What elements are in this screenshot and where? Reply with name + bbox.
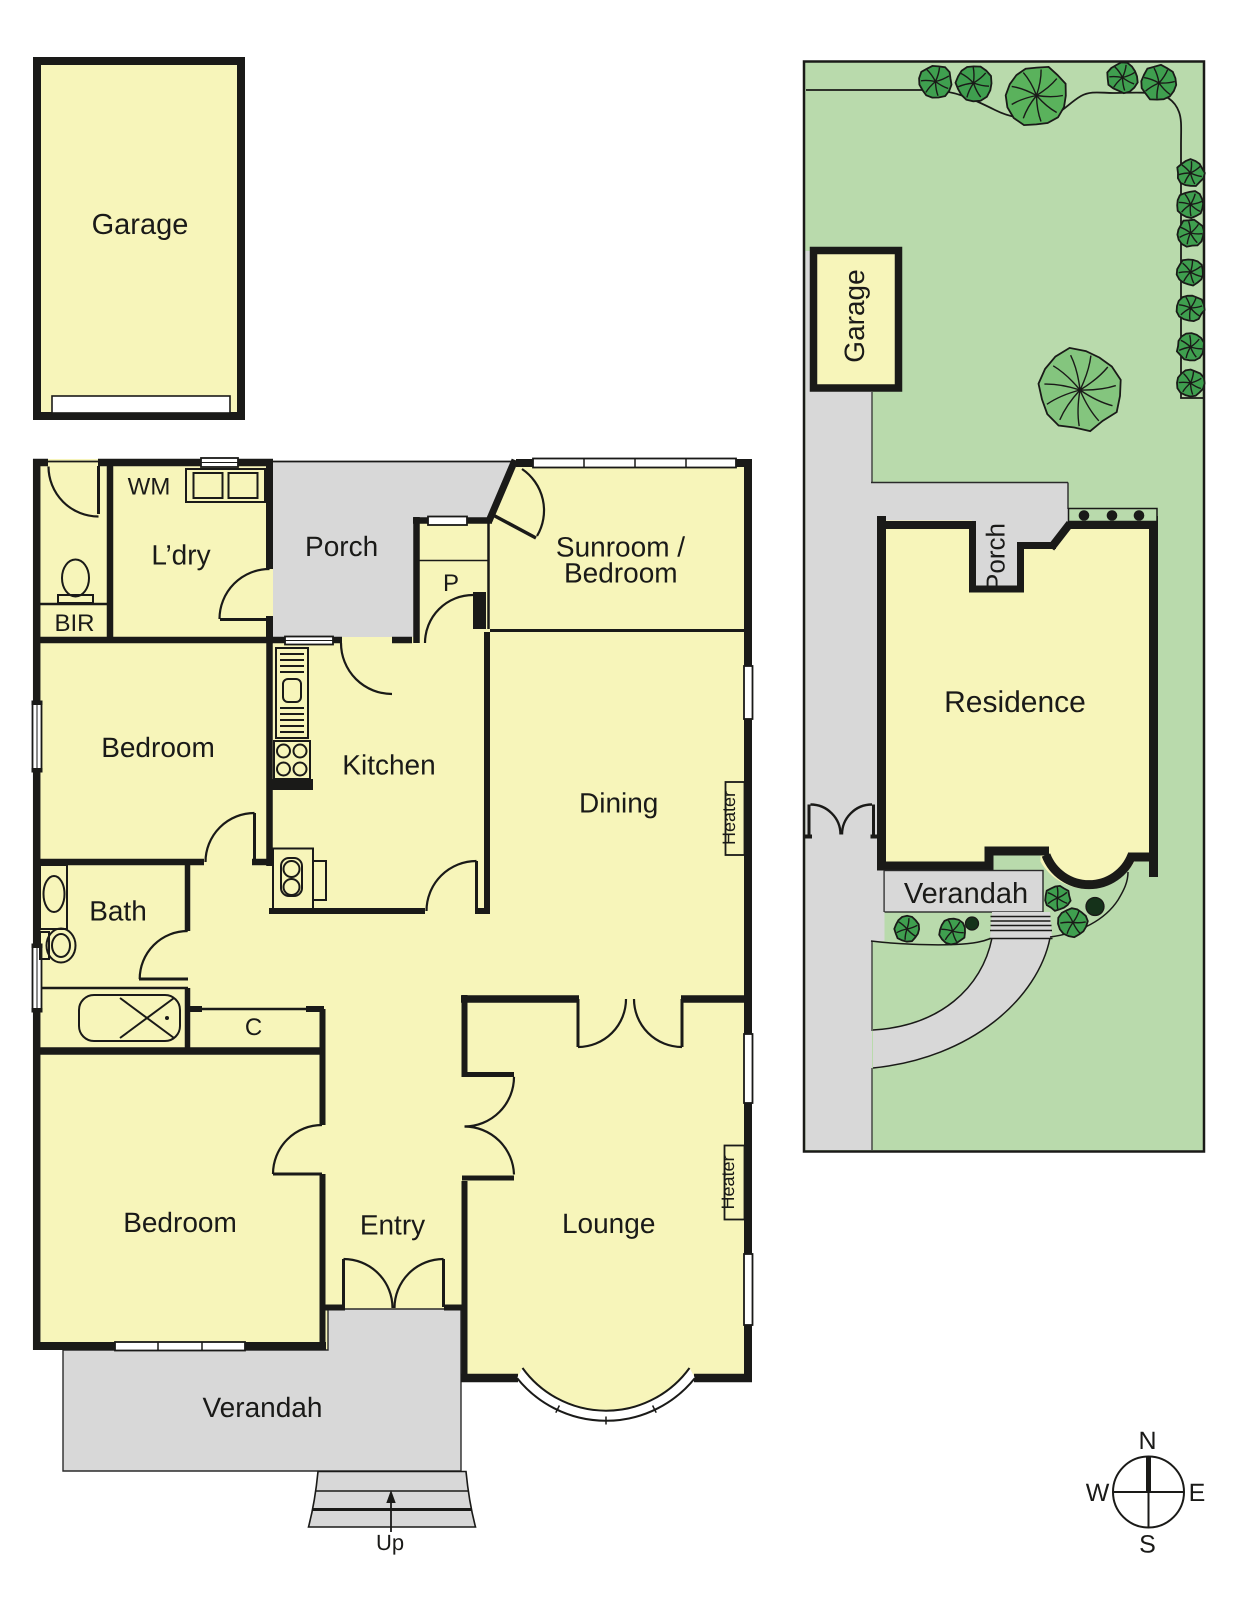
svg-text:Porch: Porch xyxy=(980,523,1010,591)
svg-text:Up: Up xyxy=(376,1530,404,1555)
svg-text:Dining: Dining xyxy=(579,788,658,819)
svg-text:Lounge: Lounge xyxy=(562,1208,655,1239)
svg-text:Verandah: Verandah xyxy=(203,1392,323,1423)
svg-text:Bedroom: Bedroom xyxy=(101,732,215,763)
svg-text:Bedroom: Bedroom xyxy=(123,1207,237,1238)
svg-text:Garage: Garage xyxy=(92,209,189,241)
svg-text:Bath: Bath xyxy=(89,896,147,927)
svg-text:P: P xyxy=(443,570,459,597)
svg-text:Heater: Heater xyxy=(719,791,739,845)
svg-text:Kitchen: Kitchen xyxy=(342,750,435,781)
svg-text:L’dry: L’dry xyxy=(151,540,210,571)
svg-text:E: E xyxy=(1189,1479,1206,1507)
svg-text:Residence: Residence xyxy=(944,686,1086,719)
svg-text:W: W xyxy=(1086,1479,1110,1507)
svg-text:Garage: Garage xyxy=(839,269,870,362)
svg-text:C: C xyxy=(245,1014,262,1041)
svg-text:N: N xyxy=(1138,1427,1156,1455)
svg-text:S: S xyxy=(1139,1531,1156,1559)
svg-text:Bedroom: Bedroom xyxy=(564,558,678,589)
svg-text:Porch: Porch xyxy=(305,531,378,562)
svg-text:Verandah: Verandah xyxy=(904,878,1028,910)
svg-text:Entry: Entry xyxy=(360,1210,425,1241)
svg-text:WM: WM xyxy=(128,474,171,501)
svg-text:Heater: Heater xyxy=(718,1155,738,1209)
svg-text:BIR: BIR xyxy=(54,610,94,637)
